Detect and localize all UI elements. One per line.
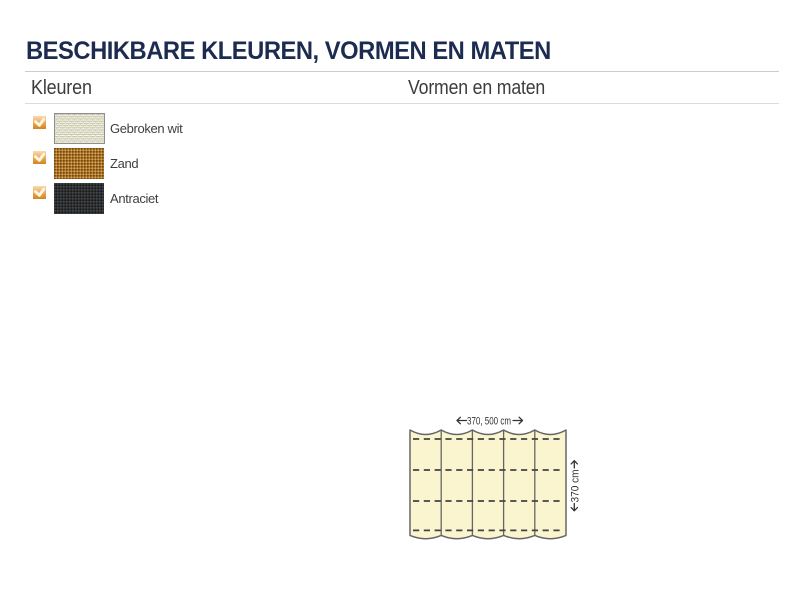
svg-text:370, 500 cm: 370, 500 cm [467,416,511,428]
svg-text:370 cm: 370 cm [569,470,581,503]
